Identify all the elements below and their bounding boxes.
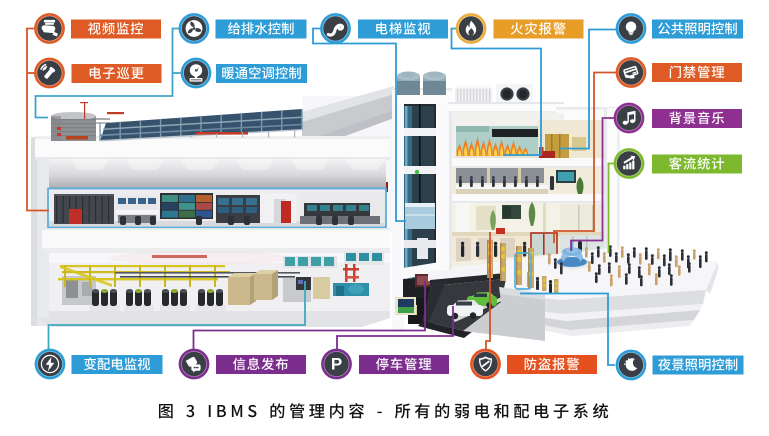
svg-text:P: P <box>331 355 342 374</box>
